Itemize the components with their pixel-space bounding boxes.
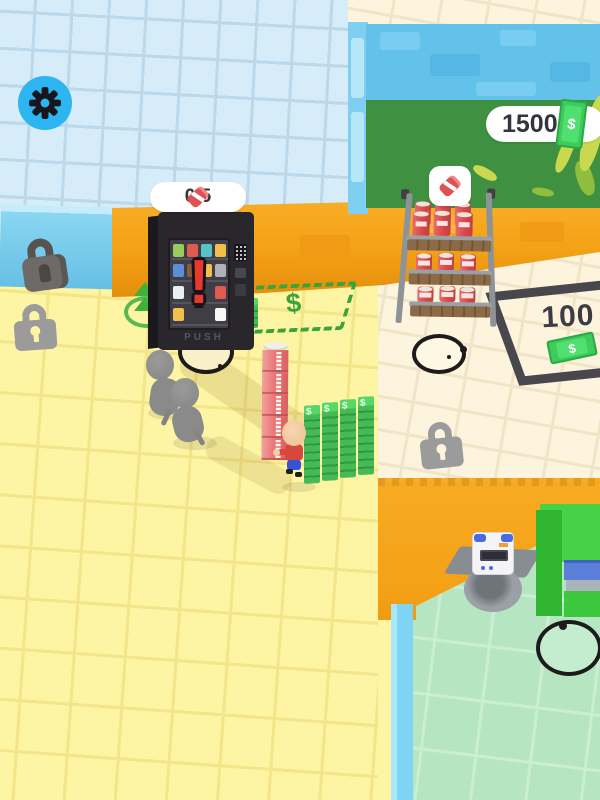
wall-texture [380,32,420,50]
shelf-board [410,305,490,317]
locked-area-price: 100 [527,298,600,336]
player-character [278,420,314,490]
wall-texture [476,82,536,96]
counter-step [566,580,600,591]
wall-texture [550,62,590,82]
soda-can [262,350,288,372]
can-label [276,352,281,370]
wall-blue-textured [366,24,600,106]
register-handle [501,534,513,542]
soda-can [455,212,472,237]
wall-texture [300,235,350,257]
grass-blade [471,162,499,183]
money-column: $ [358,396,374,475]
register-handle [474,534,486,542]
shelf-board [407,239,491,251]
spot-marker [536,620,600,676]
cash-register [472,532,514,575]
soda-can-icon [438,174,462,198]
wall-window [351,112,364,182]
game-screen: $ 100 $ [0,0,600,800]
vending-push-label: PUSH [172,332,236,343]
player-head [282,420,306,446]
money-column: $ [322,402,338,481]
counter-side [536,510,562,616]
soda-can [433,211,450,236]
spot-marker [412,334,466,374]
soda-can [438,253,454,271]
wall-shadow-edge [378,478,600,486]
shelf-restock-badge [429,166,471,206]
counter-base [564,591,600,617]
player-hand [273,449,280,456]
register-button [489,566,493,570]
money-stack-pile: $ $ $ $ [304,396,376,486]
spot-dot [218,364,222,368]
lock-icon [418,420,465,470]
soda-can [262,394,288,416]
counter-mat [564,560,600,580]
spot-dot [559,622,567,630]
register-screen [480,550,508,561]
bill-dollar: $ [566,115,576,133]
vending-machine-front: ! PUSH [158,212,254,350]
wall-texture [500,30,536,46]
spot-dot [460,346,467,353]
money-dollar: $ [306,406,312,417]
register-button [481,566,485,570]
soda-can [439,286,455,302]
money-amount: 1500 [502,110,558,139]
wall-texture [520,222,564,242]
money-dollar: $ [324,404,330,415]
gear-icon [28,86,62,120]
shelf-board [409,273,491,285]
vending-card-reader [235,268,246,278]
lock-keyhole [33,333,39,342]
soda-can [459,287,475,303]
player-shirt [285,444,303,461]
register-label [499,543,508,547]
vending-machine: ! PUSH [148,212,254,350]
customer-head [146,350,174,380]
padlock-3d [19,235,72,293]
money-dollar: $ [360,398,366,409]
shelf-line [172,324,228,326]
wall-window [351,38,364,98]
soda-can [412,211,429,236]
vending-stock-badge: 0/5 [150,182,246,212]
green-counter [536,500,600,620]
can-label [276,374,281,392]
customer-head [171,378,199,408]
soda-shelf-rack [399,189,501,333]
customer-figure [163,378,207,448]
spot-dot [447,355,451,359]
wall-texture [430,54,480,76]
settings-button[interactable] [18,76,72,130]
soda-can [417,286,433,302]
money-column: $ [340,399,356,478]
lock-keyhole [439,451,445,460]
vending-dispenser-slot [235,284,246,296]
wall-cyan-strip [348,22,368,214]
room-wall-cyan-strip [391,604,413,800]
vending-machine-window: ! [168,238,230,330]
vending-keypad [234,244,247,261]
can-label [276,396,281,414]
grass-blade [531,186,554,198]
lock-icon [12,303,57,352]
money-dollar: $ [342,401,348,412]
soda-can [262,372,288,394]
alert-exclamation: ! [170,252,228,314]
player-shoe [286,469,293,474]
player-shoe [295,472,302,477]
